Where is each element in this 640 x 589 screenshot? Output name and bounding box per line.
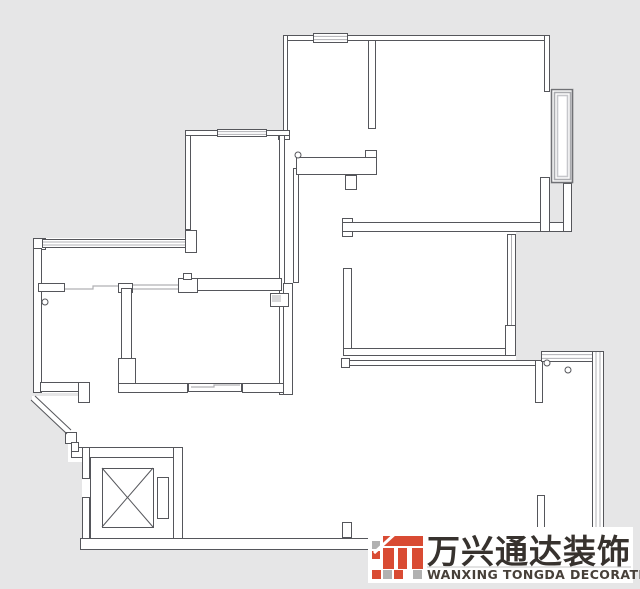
wall-segment — [369, 41, 376, 129]
floor-area — [543, 356, 600, 540]
wall-segment — [41, 383, 80, 392]
logo-square — [383, 548, 394, 569]
wall-segment — [297, 158, 377, 175]
wall-segment — [541, 178, 550, 232]
window — [43, 240, 186, 248]
wall-segment — [79, 383, 90, 403]
logo-square — [383, 570, 392, 579]
bay-window-glass — [550, 88, 573, 183]
wall-segment — [545, 36, 550, 92]
wall-segment — [343, 223, 572, 232]
wall-segment — [186, 131, 191, 230]
wall-segment — [179, 279, 198, 293]
window — [314, 34, 348, 43]
wall-segment — [344, 269, 352, 352]
logo-square — [413, 570, 422, 579]
wall-segment — [184, 274, 192, 280]
elevator-panel — [158, 478, 169, 519]
wall-segment — [119, 384, 188, 393]
logo-square — [372, 570, 381, 579]
floor-plan: 万兴通达装饰 WANXING TONGDA DECORATION — [0, 0, 640, 589]
wall-segment — [366, 151, 377, 158]
floor-area — [33, 238, 293, 393]
wall-segment — [343, 523, 352, 538]
logo-square — [398, 548, 407, 569]
wall-segment — [564, 184, 572, 232]
wall-segment — [294, 169, 299, 283]
wall-segment — [39, 284, 65, 292]
wall-segment — [83, 448, 90, 479]
logo-en-text: WANXING TONGDA DECORATION — [427, 567, 640, 582]
door-hinge-icon — [565, 367, 571, 373]
wall-segment — [186, 231, 197, 253]
wall-segment — [344, 349, 516, 356]
logo-cn-text: 万兴通达装饰 — [427, 532, 631, 571]
elevator-icon — [91, 458, 174, 539]
bay-window — [550, 88, 573, 183]
wall-segment — [66, 433, 77, 444]
logo-square — [412, 548, 423, 569]
wall-segment — [34, 249, 42, 393]
logo-square — [394, 570, 403, 579]
wall-segment — [342, 359, 350, 368]
floor-area — [343, 366, 543, 392]
wall-segment — [284, 36, 288, 135]
door-hinge-icon — [42, 299, 48, 305]
wall-segment — [344, 361, 537, 366]
company-logo: 万兴通达装饰 WANXING TONGDA DECORATION — [368, 527, 640, 583]
floor-area — [343, 222, 516, 366]
wall-segment — [536, 361, 543, 403]
corner-door-leaf — [272, 295, 281, 302]
wall-segment — [506, 326, 516, 356]
floor-plan-page: 万兴通达装饰 WANXING TONGDA DECORATION — [0, 0, 640, 589]
door-hinge-icon — [295, 152, 301, 158]
wall-segment — [346, 176, 357, 190]
wall-segment — [198, 279, 282, 291]
wall-segment — [83, 498, 90, 540]
wall-segment — [174, 448, 183, 540]
window — [218, 130, 267, 137]
wall-segment — [72, 443, 79, 452]
window — [593, 352, 604, 540]
door-hinge-icon — [544, 360, 550, 366]
